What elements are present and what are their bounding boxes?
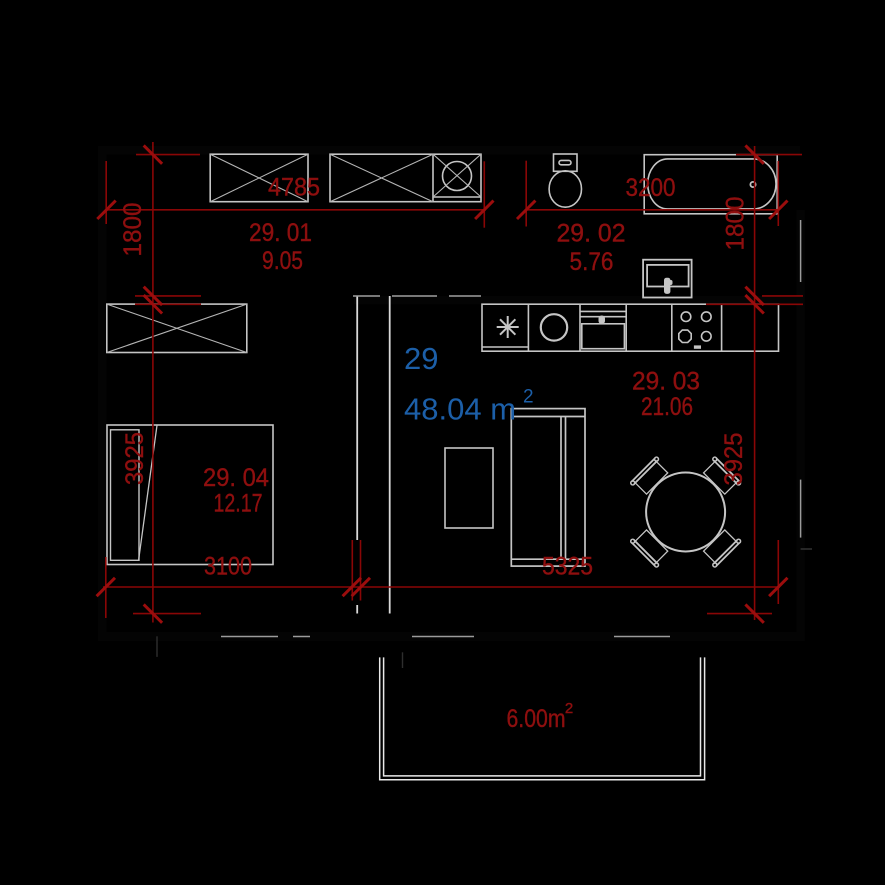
svg-text:2: 2 [565, 700, 573, 717]
svg-text:29. 03: 29. 03 [632, 368, 700, 396]
svg-text:3925: 3925 [720, 433, 748, 486]
svg-text:21.06: 21.06 [641, 393, 693, 421]
svg-text:1800: 1800 [721, 197, 749, 251]
svg-text:3100: 3100 [204, 553, 252, 581]
svg-text:1800: 1800 [119, 203, 147, 257]
svg-text:48.04 m: 48.04 m [404, 392, 516, 427]
svg-text:9.05: 9.05 [262, 247, 303, 275]
svg-text:6.00m: 6.00m [507, 705, 566, 733]
svg-text:5.76: 5.76 [570, 248, 614, 276]
svg-text:3200: 3200 [626, 174, 676, 202]
svg-text:29. 01: 29. 01 [249, 219, 312, 247]
svg-text:29. 02: 29. 02 [557, 219, 626, 247]
svg-text:4785: 4785 [268, 174, 320, 202]
svg-text:29. 04: 29. 04 [203, 464, 269, 492]
svg-text:12.17: 12.17 [214, 489, 263, 517]
svg-text:3925: 3925 [121, 432, 149, 485]
svg-text:29: 29 [404, 341, 438, 376]
svg-text:5325: 5325 [542, 552, 593, 580]
svg-text:2: 2 [523, 387, 534, 408]
